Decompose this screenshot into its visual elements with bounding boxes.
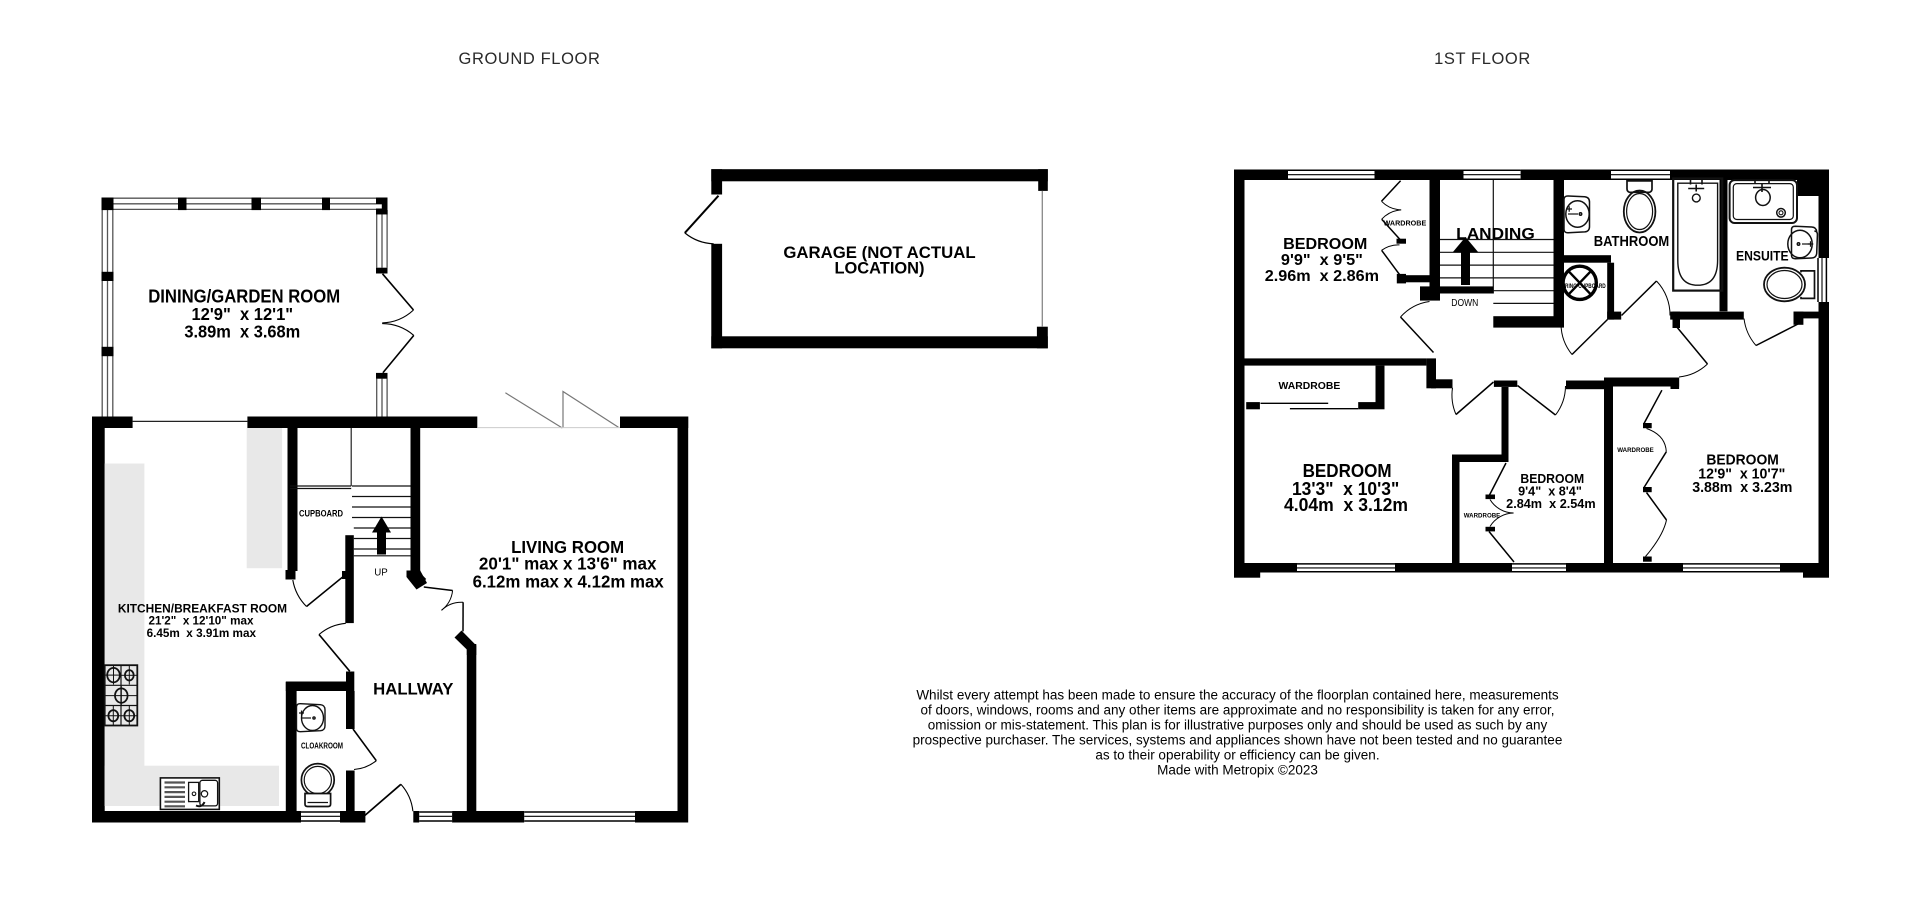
svg-text:GROUND FLOOR: GROUND FLOOR <box>459 50 601 68</box>
svg-text:9'9" x 9'5": 9'9" x 9'5" <box>1281 252 1363 269</box>
svg-text:CLOAKROOM: CLOAKROOM <box>301 742 343 751</box>
svg-text:HALLWAY: HALLWAY <box>373 681 453 699</box>
svg-text:LOCATION): LOCATION) <box>835 259 925 278</box>
svg-text:20'1" max x 13'6" max: 20'1" max x 13'6" max <box>479 553 657 573</box>
svg-text:WARDROBE: WARDROBE <box>1464 513 1501 520</box>
svg-text:6.12m max x 4.12m max: 6.12m max x 4.12m max <box>473 572 664 592</box>
svg-text:3.89m x 3.68m: 3.89m x 3.68m <box>184 322 300 342</box>
svg-text:Made with Metropix ©2023: Made with Metropix ©2023 <box>1157 762 1318 777</box>
svg-text:as to their operability or eff: as to their operability or efficiency ca… <box>1095 747 1379 762</box>
svg-text:WARDROBE: WARDROBE <box>1617 447 1654 454</box>
svg-text:BATHROOM: BATHROOM <box>1594 234 1670 250</box>
svg-text:DOWN: DOWN <box>1451 298 1478 309</box>
svg-text:WARDROBE: WARDROBE <box>1279 381 1341 392</box>
svg-text:1ST FLOOR: 1ST FLOOR <box>1434 50 1531 68</box>
svg-text:ENSUITE: ENSUITE <box>1736 248 1789 264</box>
svg-text:2.84m x 2.54m: 2.84m x 2.54m <box>1506 496 1596 511</box>
svg-text:prospective purchaser. The ser: prospective purchaser. The services, sys… <box>913 732 1563 747</box>
svg-text:6.45m x 3.91m max: 6.45m x 3.91m max <box>147 626 256 640</box>
svg-text:AIRING CUPBOARD: AIRING CUPBOARD <box>1560 283 1606 290</box>
svg-text:UP: UP <box>374 568 388 579</box>
svg-text:3.88m x 3.23m: 3.88m x 3.23m <box>1692 479 1792 496</box>
svg-text:omission or mis-statement. Thi: omission or mis-statement. This plan is … <box>928 717 1548 732</box>
svg-text:2.96m x 2.86m: 2.96m x 2.86m <box>1265 268 1379 285</box>
svg-text:LANDING: LANDING <box>1456 226 1535 243</box>
svg-text:4.04m x 3.12m: 4.04m x 3.12m <box>1284 494 1408 515</box>
svg-text:CUPBOARD: CUPBOARD <box>299 509 343 519</box>
svg-text:of doors, windows, rooms and a: of doors, windows, rooms and any other i… <box>920 702 1554 717</box>
svg-text:BEDROOM: BEDROOM <box>1283 236 1367 253</box>
svg-text:Whilst every attempt has been: Whilst every attempt has been made to en… <box>916 687 1559 702</box>
svg-text:WARDROBE: WARDROBE <box>1384 219 1427 228</box>
